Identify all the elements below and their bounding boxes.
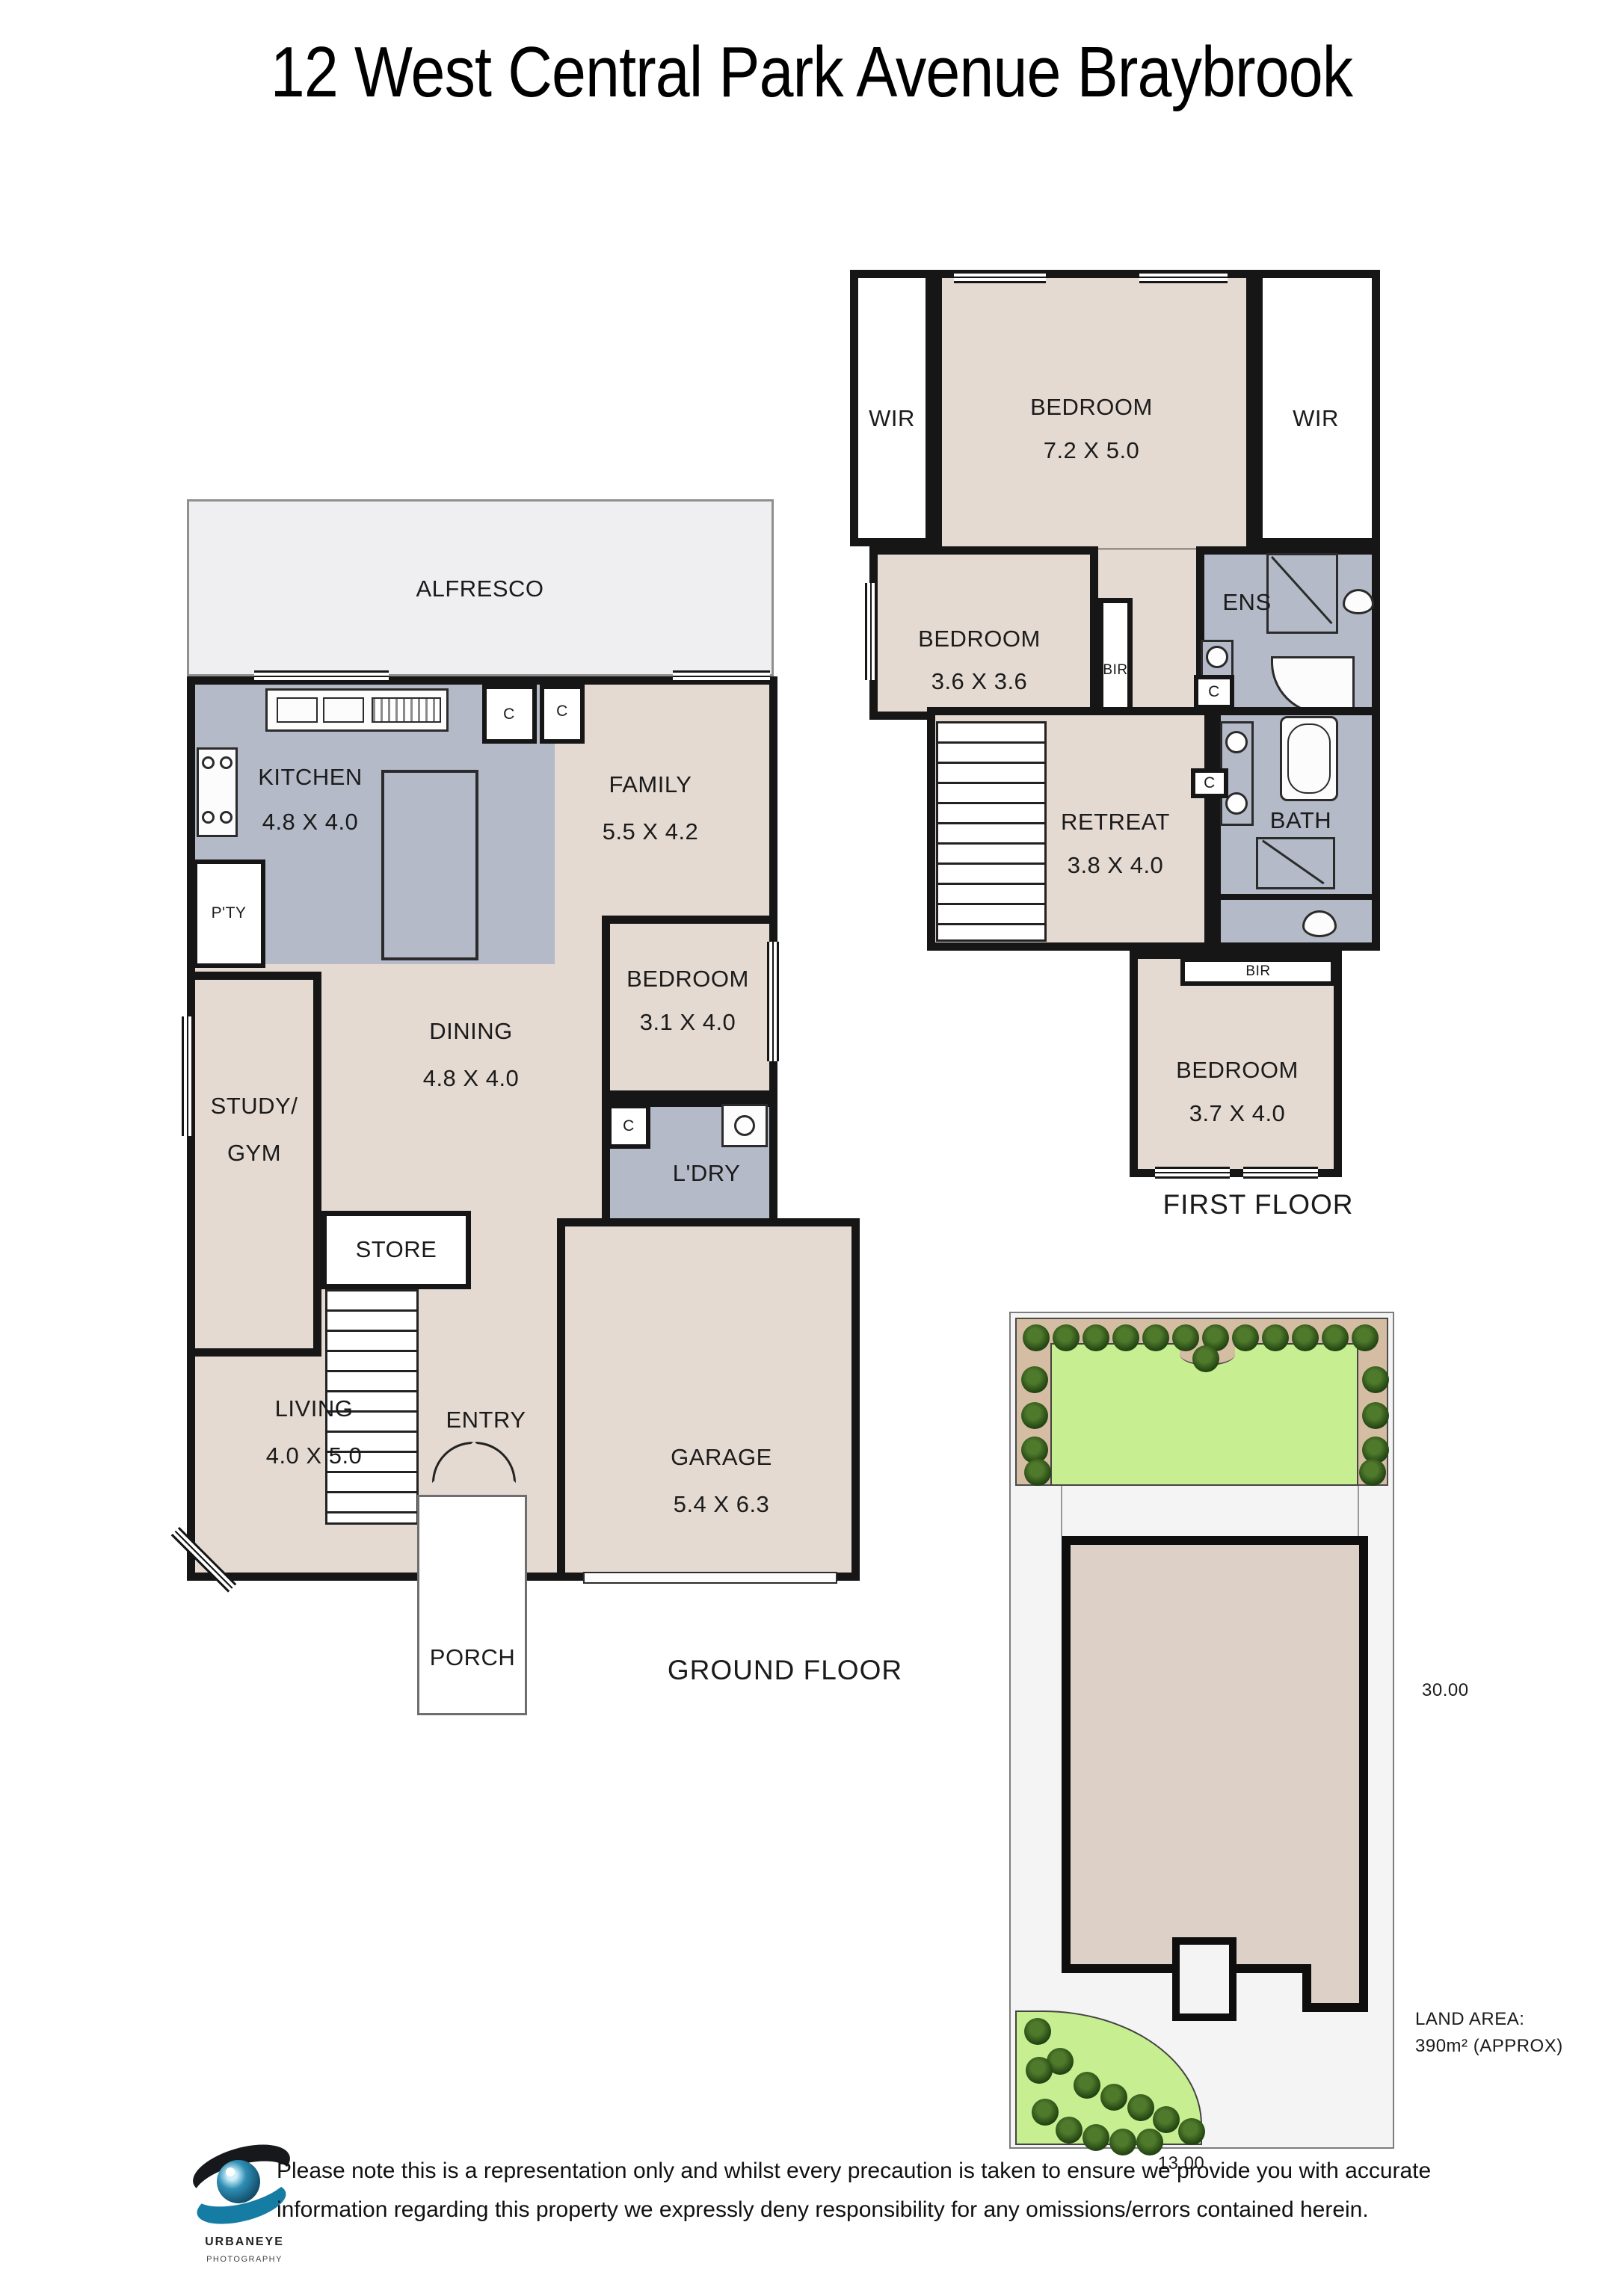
floorplan-page: { "title": "12 West Central Park Avenue … <box>0 0 1623 2296</box>
disclaimer-line-2: information regarding this property we e… <box>277 2197 1369 2223</box>
eye-iris <box>217 2160 260 2203</box>
footer: URBANEYE PHOTOGRAPHY Please note this is… <box>0 0 1623 2296</box>
disclaimer-line-1: Please note this is a representation onl… <box>277 2158 1431 2184</box>
brand-name: URBANEYE <box>205 2235 284 2249</box>
brand-sub: PHOTOGRAPHY <box>206 2255 283 2264</box>
eye-glint <box>226 2167 235 2176</box>
